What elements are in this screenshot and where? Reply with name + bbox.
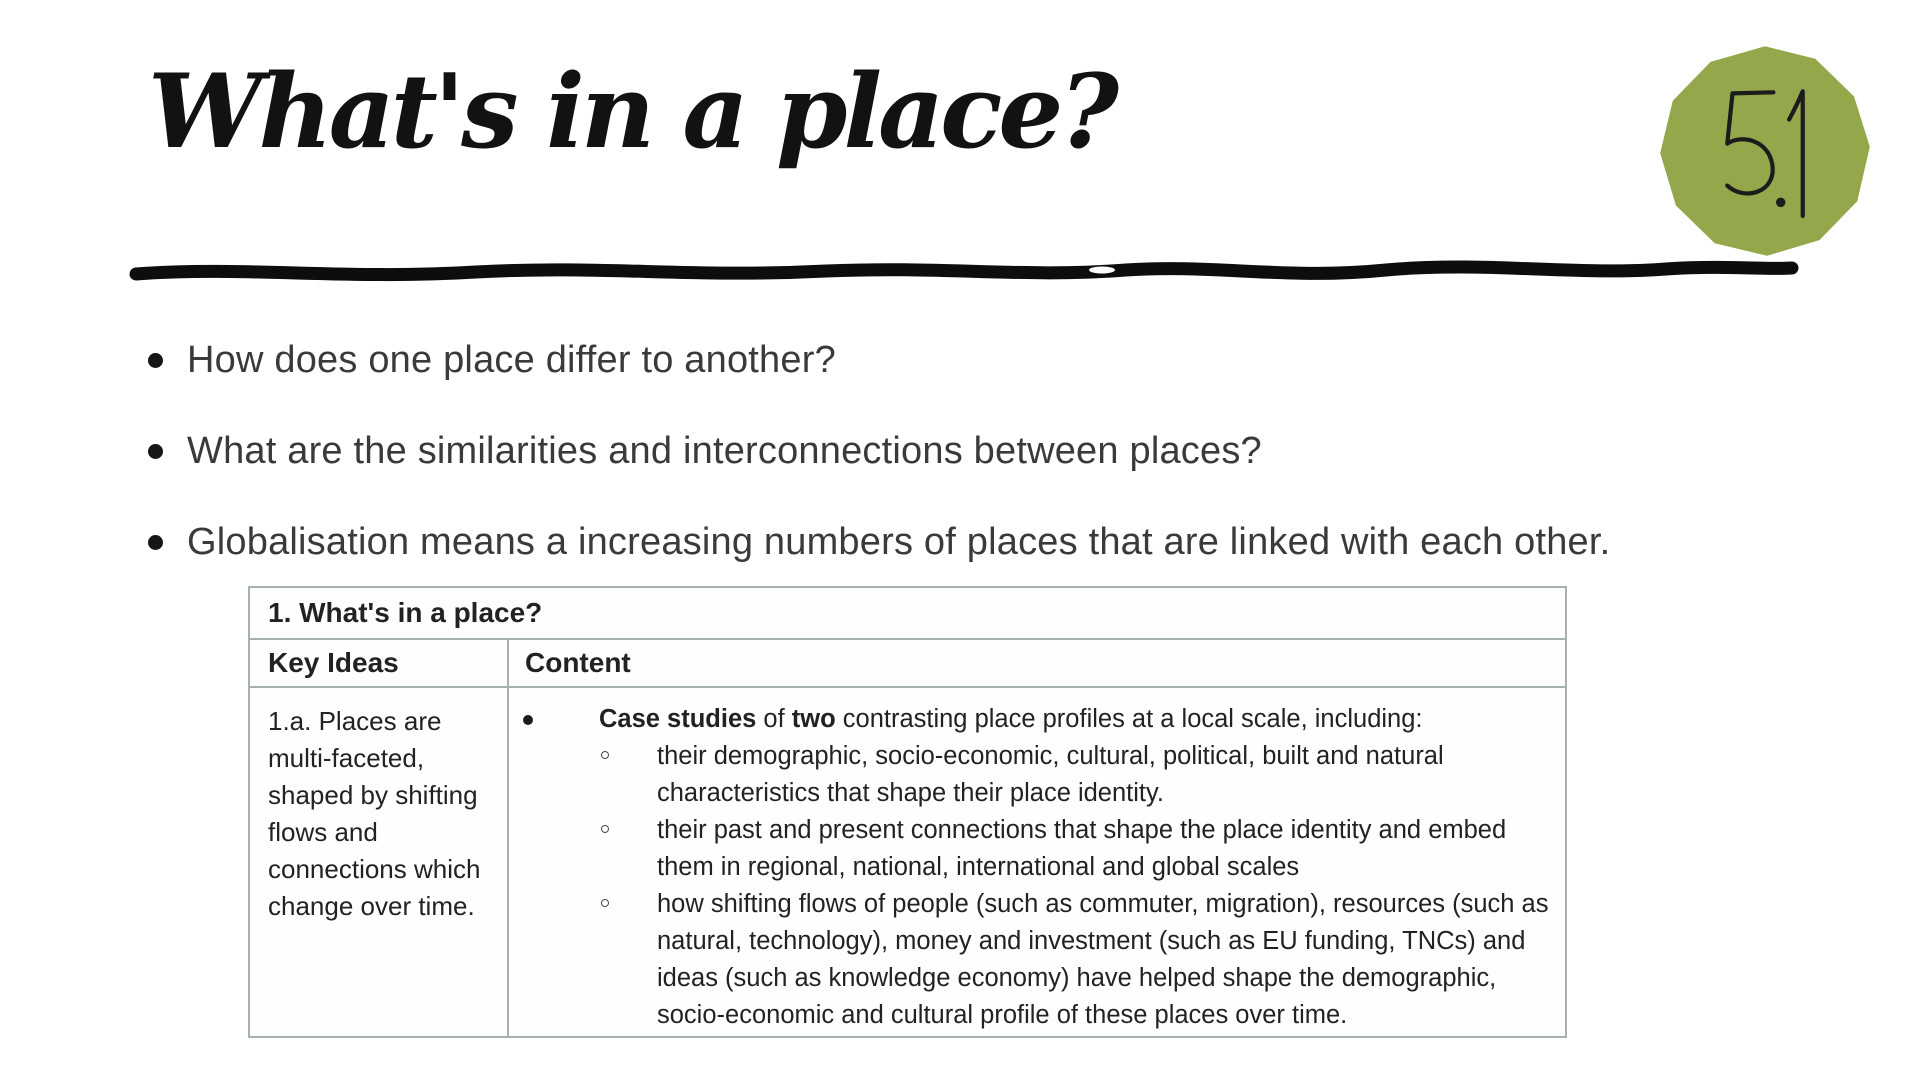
bullet-list: How does one place differ to another?Wha… <box>148 338 1648 611</box>
slide: { "slide": { "title": "What's in a place… <box>0 0 1920 1080</box>
content-text: Case studies of two contrasting place pr… <box>599 701 1553 738</box>
bullet-dot-icon <box>148 353 163 368</box>
bullet-item: Globalisation means a increasing numbers… <box>148 520 1648 564</box>
content-sub-bullet: how shifting flows of people (such as co… <box>601 886 1553 1034</box>
table-body-row: 1.a. Places are multi-faceted, shaped by… <box>250 688 1565 1036</box>
badge-polygon-icon <box>1656 42 1874 260</box>
content-sub-bullet: their demographic, socio-economic, cultu… <box>601 738 1553 812</box>
column-header-label: Key Ideas <box>268 647 399 679</box>
disc-bullet-icon <box>523 715 533 725</box>
content-text: their demographic, socio-economic, cultu… <box>657 738 1553 812</box>
content-cell: Case studies of two contrasting place pr… <box>509 688 1565 1036</box>
bullet-text: Globalisation means a increasing numbers… <box>187 521 1610 564</box>
bullet-dot-icon <box>148 444 163 459</box>
spec-table: 1. What's in a place? Key Ideas Content … <box>248 586 1567 1038</box>
column-header-key-ideas: Key Ideas <box>250 640 509 686</box>
underline-stroke-icon <box>126 250 1802 292</box>
circle-bullet-icon <box>601 751 609 759</box>
bullet-item: How does one place differ to another? <box>148 338 1648 382</box>
content-text: their past and present connections that … <box>657 812 1553 886</box>
table-title-row: 1. What's in a place? <box>250 588 1565 640</box>
content-sub-bullet: their past and present connections that … <box>601 812 1553 886</box>
title-underline <box>126 250 1802 292</box>
circle-bullet-icon <box>601 825 609 833</box>
key-ideas-cell: 1.a. Places are multi-faceted, shaped by… <box>250 688 509 1036</box>
bullet-text: How does one place differ to another? <box>187 339 836 382</box>
circle-bullet-icon <box>601 899 609 907</box>
bullet-text: What are the similarities and interconne… <box>187 430 1262 473</box>
column-header-label: Content <box>525 647 631 679</box>
section-badge: 5.1 <box>1656 42 1874 260</box>
content-bullet: Case studies of two contrasting place pr… <box>523 701 1553 738</box>
column-header-content: Content <box>509 640 1565 686</box>
content-text: how shifting flows of people (such as co… <box>657 886 1553 1034</box>
table-title: 1. What's in a place? <box>268 597 542 629</box>
page-title: What's in a place? <box>148 52 1115 172</box>
table-header-row: Key Ideas Content <box>250 640 1565 688</box>
bullet-item: What are the similarities and interconne… <box>148 429 1648 473</box>
bullet-dot-icon <box>148 535 163 550</box>
